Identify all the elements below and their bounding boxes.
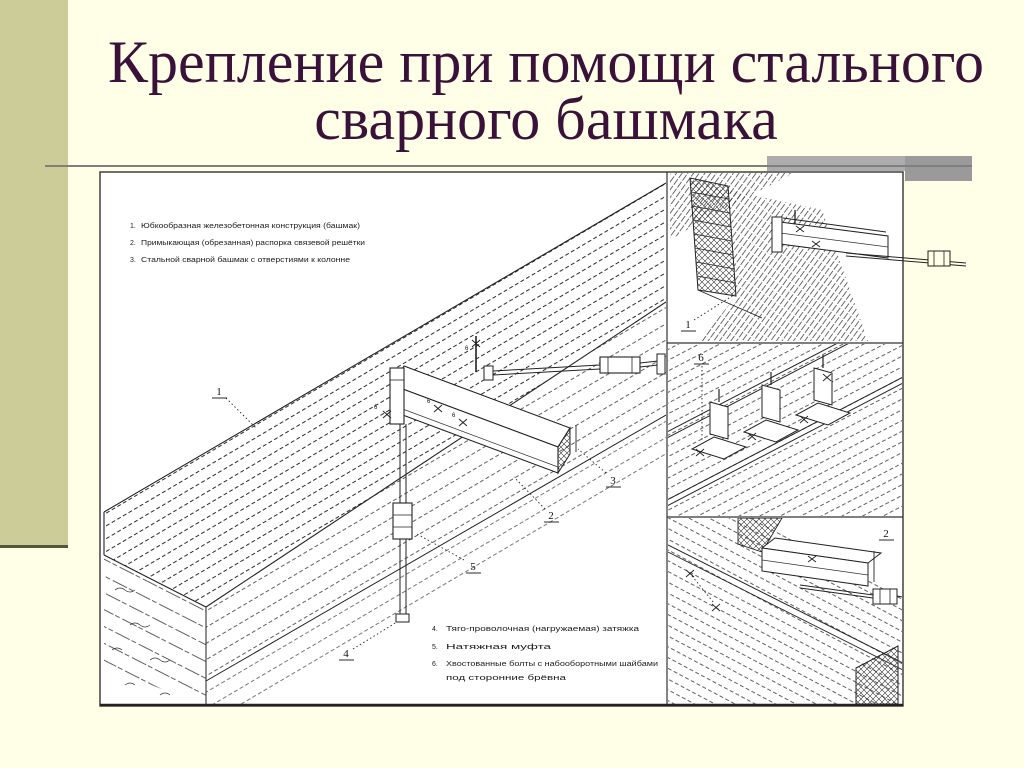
legend-4-text: Тяго-проволочная (нагружаемая) затяжка	[446, 626, 639, 633]
title-divider-bar-step	[905, 156, 972, 181]
callout-2: 2	[548, 510, 554, 522]
legend-5-text: Натяжная муфта	[446, 644, 551, 651]
turnbuckle	[873, 589, 897, 604]
panelB-callout: 6	[698, 352, 704, 364]
technical-drawing: 1 2 3 4 5 6 6 6 6 1. Юбкообразная железо…	[0, 0, 1024, 768]
turnbuckle	[393, 503, 412, 539]
legend-1-text: Юбкообразная железобетонная конструкция …	[141, 222, 360, 230]
legend-top: 1. Юбкообразная железобетонная конструкц…	[130, 222, 365, 264]
callout-5: 5	[470, 561, 476, 573]
legend-6-text: Хвостованные болты с набооборотными шайб…	[446, 660, 658, 668]
legend-3-text: Стальной сварной башмак с отверстиями к …	[141, 256, 350, 264]
legend-3-num: 3.	[130, 257, 136, 264]
callout-4: 4	[343, 648, 349, 660]
legend-6-num: 6.	[432, 661, 438, 668]
legend-1-num: 1.	[130, 223, 136, 230]
turnbuckle	[928, 251, 950, 266]
callout-1: 1	[216, 386, 222, 398]
legend-2-text: Примыкающая (обрезанная) распорка связев…	[141, 239, 365, 247]
legend-5-num: 5.	[432, 644, 438, 651]
legend-4-num: 4.	[432, 626, 438, 633]
turnbuckle	[600, 357, 640, 373]
callout-3: 3	[610, 475, 616, 487]
presentation-slide: Крепление при помощи стального сварного …	[0, 0, 1024, 768]
panelC-callout: 2	[883, 528, 889, 540]
legend-2-num: 2.	[130, 240, 136, 247]
title-divider-line	[45, 165, 972, 167]
panelA-callout: 1	[685, 319, 691, 331]
legend-6-text2: под сторонние брёвна	[446, 674, 566, 682]
